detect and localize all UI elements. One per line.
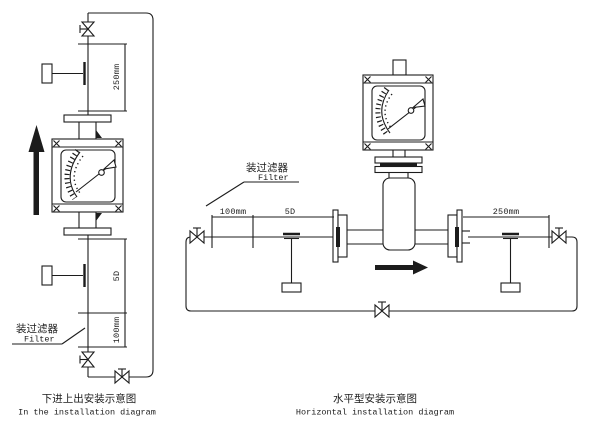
left-flange (333, 210, 347, 262)
pipe-support-icon (501, 234, 520, 292)
inlet-valve-icon (190, 228, 204, 243)
right-dim-100mm: 100mm (220, 207, 247, 217)
right-dim-5d: 5D (285, 207, 296, 217)
flow-direction-right-arrow (375, 261, 428, 275)
pipe-support-icon (282, 234, 301, 292)
right-filter-callout: 装过滤器 Filter (206, 161, 299, 206)
left-caption-en: In the installation diagram (18, 408, 156, 418)
filter-label-cn: 装过滤器 (16, 322, 58, 335)
right-bypass-pipe (186, 237, 577, 311)
left-filter-callout: 装过滤器 Filter (12, 322, 85, 345)
left-caption-cn: 下进上出安装示意图 (42, 392, 137, 405)
right-dimension-ticks (212, 215, 549, 248)
flow-meter (52, 115, 123, 235)
outlet-valve-icon (80, 22, 94, 36)
flow-direction-up-arrow (29, 125, 45, 215)
filter-label-en: Filter (24, 335, 55, 345)
inlet-valve-icon (80, 352, 94, 367)
left-dim-5d: 5D (112, 271, 122, 282)
right-main-pipe (191, 230, 572, 244)
bypass-valve-icon (115, 369, 129, 383)
right-diagram: 100mm 5D 250mm 装过滤器 Filter 水 (186, 60, 577, 418)
flow-meter (363, 60, 433, 250)
left-dim-250mm: 250mm (112, 64, 122, 91)
right-flange (448, 210, 462, 262)
bypass-valve-icon (375, 302, 389, 317)
outlet-valve-icon (552, 228, 566, 243)
left-diagram: 250mm 5D 100mm (12, 13, 156, 418)
right-caption-cn: 水平型安装示意图 (333, 392, 417, 405)
diagram-canvas: 250mm 5D 100mm (0, 0, 600, 423)
right-dim-250mm: 250mm (493, 207, 520, 217)
installation-diagram-figure: 250mm 5D 100mm (0, 0, 600, 423)
wall-bracket-icon (42, 62, 85, 85)
left-dim-100mm: 100mm (112, 317, 122, 344)
right-caption-en: Horizontal installation diagram (296, 408, 454, 418)
wall-bracket-icon (42, 264, 85, 287)
meter-body (383, 178, 415, 250)
